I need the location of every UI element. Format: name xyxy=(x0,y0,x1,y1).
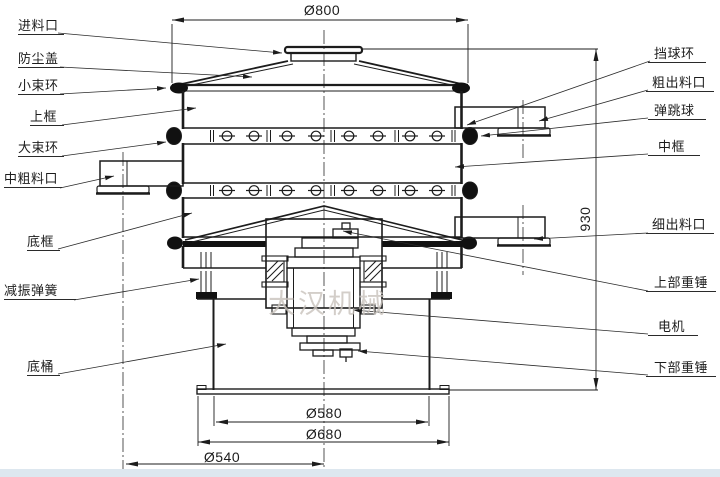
label-damping-spring: 减振弹簧 xyxy=(4,284,76,300)
label-upper-frame: 上框 xyxy=(30,110,64,126)
bottom-frame-shape xyxy=(167,206,477,268)
label-large-clamp-ring: 大束环 xyxy=(18,141,64,157)
dimension-barrel-diameter: Ø580 xyxy=(301,405,347,421)
clamp-band-1 xyxy=(167,128,478,145)
label-small-clamp-ring: 小束环 xyxy=(18,79,64,95)
upper-weight-shape xyxy=(287,223,360,268)
label-feed-inlet: 进料口 xyxy=(18,19,64,35)
label-motor: 电机 xyxy=(648,320,698,336)
dust-cover-shape xyxy=(177,61,466,87)
watermark: 大汉机械 xyxy=(268,282,388,321)
label-lower-weight: 下部重锤 xyxy=(646,361,716,377)
footer-strip xyxy=(0,469,720,477)
dimension-top-diameter: Ø800 xyxy=(294,2,350,18)
label-bottom-frame: 底框 xyxy=(27,235,60,251)
lower-weight-shape xyxy=(292,328,360,362)
label-ball-stop-ring: 挡球环 xyxy=(648,47,706,63)
clamp-band-2 xyxy=(167,182,478,199)
dimension-outlet-diameter: Ø540 xyxy=(199,449,245,465)
diagram-canvas xyxy=(0,0,720,477)
dimension-flange-diameter: Ø680 xyxy=(301,426,347,442)
label-upper-weight: 上部重锤 xyxy=(646,276,716,292)
label-middle-frame: 中框 xyxy=(648,140,700,156)
feed-inlet-shape xyxy=(285,47,362,61)
label-dust-cover: 防尘盖 xyxy=(18,52,64,68)
engineering-drawing: 大汉机械 进料口 防尘盖 小束环 上框 大束环 中粗料口 底框 减振弹簧 底桶 … xyxy=(0,0,720,477)
label-base-barrel: 底桶 xyxy=(27,360,60,376)
label-fine-outlet: 细出料口 xyxy=(646,218,714,234)
small-clamp-ring-shape xyxy=(170,83,470,94)
dimension-overall-height: 930 xyxy=(577,203,593,235)
label-mid-coarse-outlet: 中粗料口 xyxy=(4,172,62,188)
label-bouncing-ball: 弹跳球 xyxy=(648,104,706,120)
label-coarse-outlet: 粗出料口 xyxy=(646,76,714,92)
